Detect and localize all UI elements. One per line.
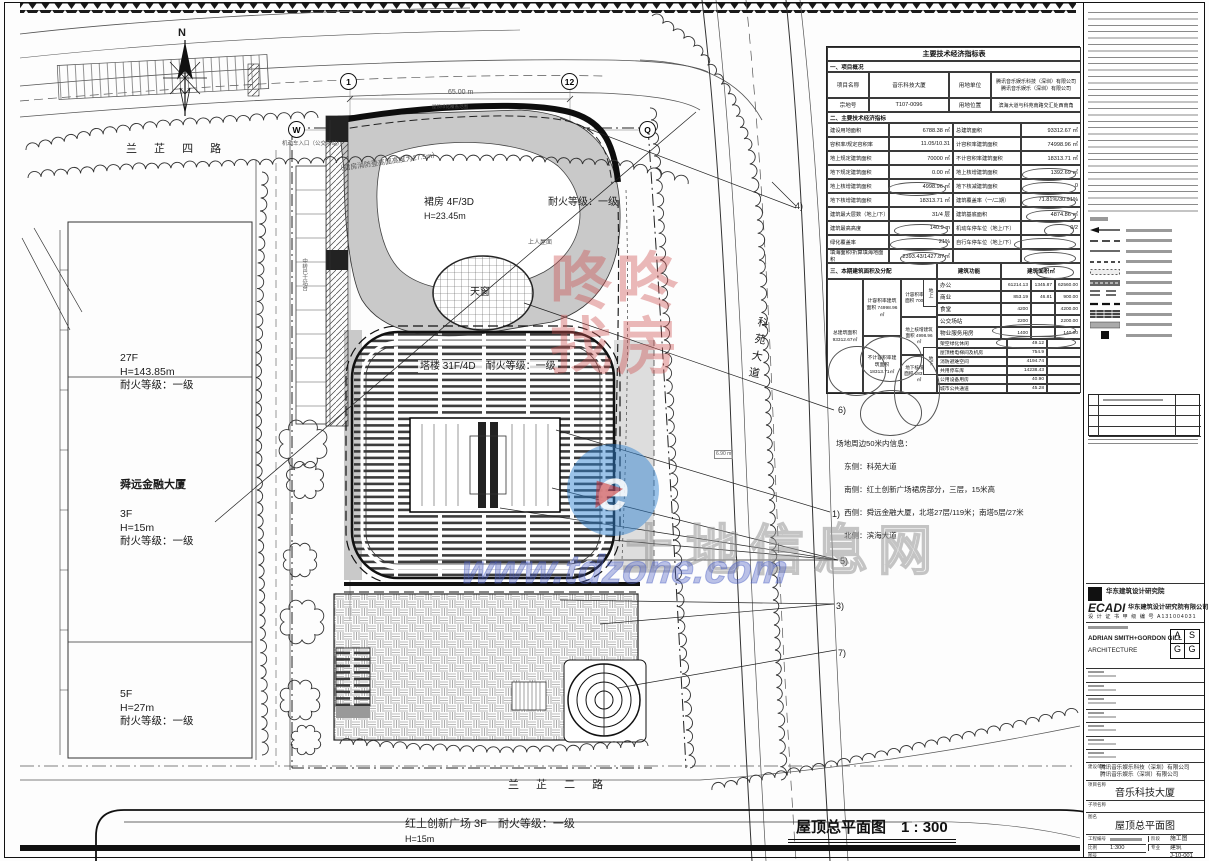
revision-cloud bbox=[894, 224, 948, 237]
revision-cloud bbox=[888, 182, 946, 196]
revision-cloud bbox=[1024, 252, 1076, 265]
revision-cloud bbox=[900, 252, 946, 265]
revision-cloud bbox=[1036, 266, 1074, 279]
drawing-sheet: N 兰 芷 四 路 科苑大道 兰 芷 二 路 27FH=143.85m耐火等级：… bbox=[0, 0, 1209, 861]
revision-cloud bbox=[996, 336, 1076, 349]
revision-cloud bbox=[894, 356, 940, 426]
revision-cloud bbox=[890, 238, 948, 251]
revision-cloud bbox=[1022, 196, 1076, 209]
revision-cloud bbox=[1026, 210, 1076, 223]
sheet-border bbox=[4, 2, 1205, 858]
revision-cloud bbox=[1014, 238, 1076, 251]
revision-cloud bbox=[1022, 182, 1076, 195]
revision-cloud bbox=[1044, 224, 1074, 237]
revision-cloud bbox=[1022, 168, 1076, 181]
